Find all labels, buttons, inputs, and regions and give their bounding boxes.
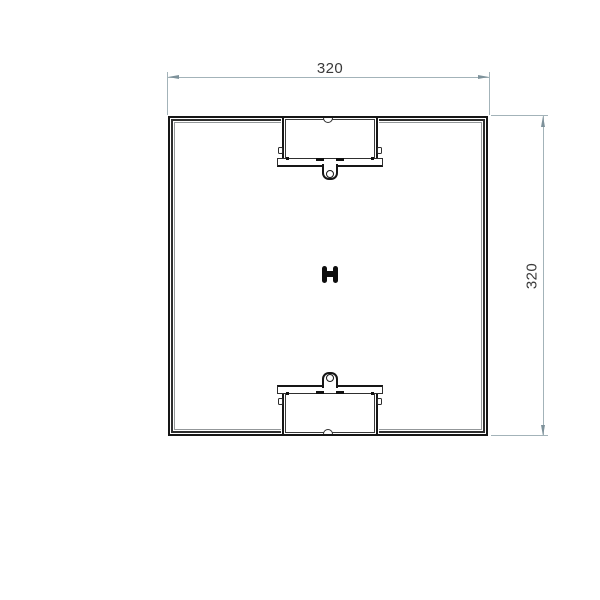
- center-fastener-link: [327, 271, 333, 277]
- bottom-recess-right-nub: [377, 398, 382, 405]
- center-fastener-right-bar: [333, 266, 338, 283]
- width-dimension-label: 320: [317, 60, 343, 77]
- height-extension-line-top: [491, 115, 548, 116]
- top-clip-tab-hole: [326, 170, 334, 178]
- width-arrow-right-icon: [478, 75, 489, 79]
- height-extension-line-bottom: [491, 435, 548, 436]
- bottom-clip-tab-hole: [326, 374, 334, 382]
- bottom-recess-corner-dot-left: [286, 392, 289, 395]
- top-recess-right-nub: [377, 147, 382, 154]
- top-recess-corner-dot-left: [286, 157, 289, 160]
- bottom-recess-corner-dot-right: [371, 392, 374, 395]
- bottom-recess-dash-left: [316, 391, 324, 394]
- top-recess-inner-line: [285, 119, 375, 161]
- width-dimension-line: [168, 77, 489, 78]
- height-arrow-bottom-icon: [541, 425, 545, 436]
- top-recess-dash-right: [336, 158, 344, 161]
- height-dimension-line: [543, 116, 544, 436]
- drawing-canvas: 320 320: [0, 0, 600, 600]
- top-recess-dash-left: [316, 158, 324, 161]
- bottom-recess-dash-right: [336, 391, 344, 394]
- top-recess-corner-dot-right: [371, 157, 374, 160]
- bottom-edge-dimple: [323, 429, 333, 434]
- height-dimension-label: 320: [524, 263, 541, 289]
- height-arrow-top-icon: [541, 116, 545, 127]
- top-recess-left-nub: [278, 147, 283, 154]
- bottom-recess-left-nub: [278, 398, 283, 405]
- width-arrow-left-icon: [168, 75, 179, 79]
- bottom-recess-inner-line: [285, 391, 375, 433]
- width-extension-line-right: [489, 72, 490, 115]
